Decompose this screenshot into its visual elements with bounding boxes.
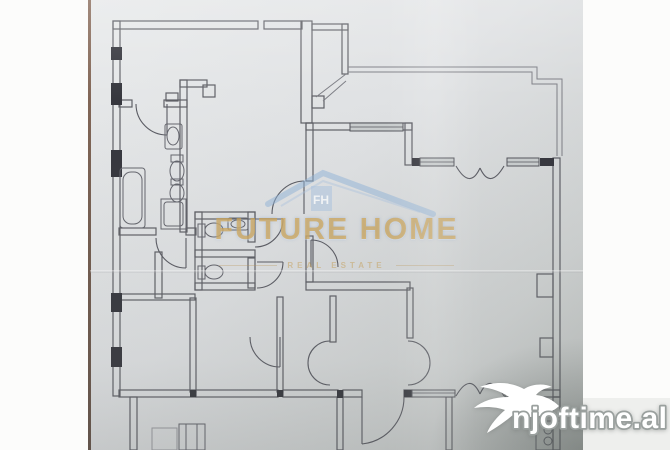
house-roof-icon: FH <box>268 173 433 214</box>
watermark-subtitle-row: Real Estate <box>90 261 583 270</box>
njoftime-logo: njoftime.al <box>440 372 670 450</box>
subtitle-rule-right <box>396 265 454 266</box>
subtitle-rule-left <box>219 265 277 266</box>
njoftime-text: njoftime.al <box>512 402 668 435</box>
listing-photo: FH FUTURE HOME Real Estate njoftime.al <box>0 0 670 450</box>
watermark-subtitle: Real Estate <box>287 261 385 270</box>
watermark-title: FUTURE HOME <box>95 211 578 247</box>
fh-monogram: FH <box>313 193 329 207</box>
